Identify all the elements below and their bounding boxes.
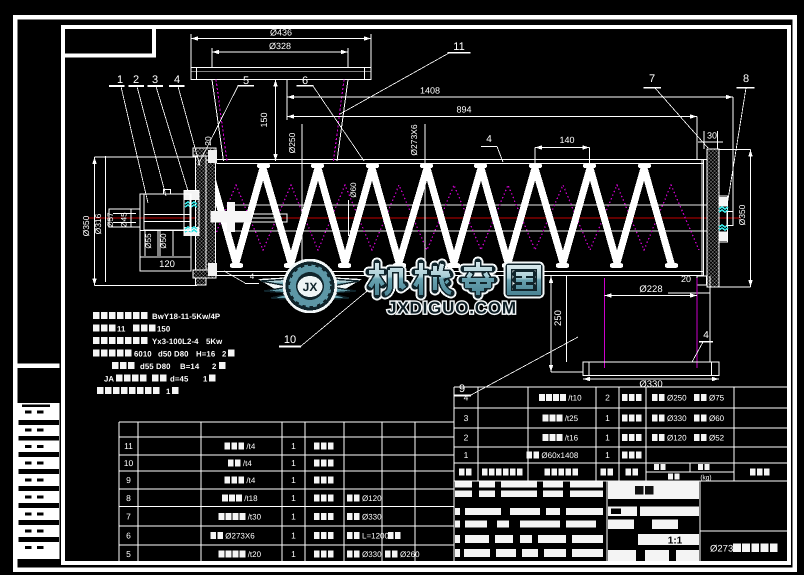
svg-text:4: 4 bbox=[486, 134, 492, 145]
svg-text:1:1: 1:1 bbox=[668, 536, 683, 547]
svg-text:2: 2 bbox=[464, 433, 469, 443]
svg-text:/t25: /t25 bbox=[565, 414, 579, 423]
svg-text:/t10: /t10 bbox=[568, 394, 582, 403]
svg-text:1: 1 bbox=[203, 375, 208, 384]
svg-text:1: 1 bbox=[605, 433, 610, 443]
svg-text:1: 1 bbox=[464, 450, 469, 460]
svg-text:1: 1 bbox=[605, 450, 610, 460]
svg-text:4: 4 bbox=[250, 272, 255, 281]
svg-text:Ø57: Ø57 bbox=[106, 212, 115, 228]
svg-text:BwY18-11-5Kw/4P: BwY18-11-5Kw/4P bbox=[152, 312, 220, 321]
svg-text:JX: JX bbox=[303, 280, 318, 294]
svg-text:Ø316: Ø316 bbox=[93, 213, 103, 234]
svg-text:Ø120: Ø120 bbox=[362, 494, 382, 503]
svg-text:8: 8 bbox=[743, 73, 749, 85]
svg-text:Ø330: Ø330 bbox=[639, 379, 662, 390]
svg-text:Yx3-100L2-4: Yx3-100L2-4 bbox=[152, 337, 199, 346]
svg-text:10: 10 bbox=[284, 334, 296, 346]
svg-text:B=14: B=14 bbox=[180, 362, 200, 371]
svg-text:/t16: /t16 bbox=[565, 434, 579, 443]
svg-text:d55 D80: d55 D80 bbox=[140, 362, 171, 371]
svg-text:140: 140 bbox=[559, 135, 574, 145]
svg-text:/t4: /t4 bbox=[243, 459, 252, 468]
svg-text:3: 3 bbox=[152, 74, 158, 86]
svg-text:Ø330: Ø330 bbox=[362, 550, 382, 559]
svg-text:/t18: /t18 bbox=[244, 494, 258, 503]
svg-text:11: 11 bbox=[117, 325, 126, 334]
svg-text:JA: JA bbox=[104, 375, 114, 384]
svg-text:Ø60: Ø60 bbox=[709, 414, 725, 423]
svg-text:5: 5 bbox=[126, 549, 131, 559]
svg-text:Ø75: Ø75 bbox=[709, 394, 725, 403]
svg-text:120: 120 bbox=[159, 259, 175, 270]
svg-text:4: 4 bbox=[174, 74, 180, 86]
svg-text:1: 1 bbox=[291, 549, 296, 559]
svg-text:Ø350: Ø350 bbox=[737, 204, 747, 225]
svg-text:Ø273: Ø273 bbox=[710, 544, 733, 555]
svg-text:1: 1 bbox=[291, 531, 296, 541]
svg-text:/t30: /t30 bbox=[248, 512, 262, 521]
svg-text:Ø330: Ø330 bbox=[667, 414, 687, 423]
svg-text:Ø350: Ø350 bbox=[81, 215, 91, 236]
svg-text:30: 30 bbox=[707, 131, 717, 141]
svg-text:20: 20 bbox=[681, 274, 691, 284]
svg-text:6010: 6010 bbox=[134, 350, 152, 359]
svg-text:9: 9 bbox=[126, 475, 131, 485]
svg-text:1: 1 bbox=[291, 493, 296, 503]
svg-text:Ø436: Ø436 bbox=[270, 28, 292, 38]
svg-text:11: 11 bbox=[453, 41, 464, 53]
svg-text:JXDIGUO.COM: JXDIGUO.COM bbox=[387, 299, 517, 318]
svg-text:150: 150 bbox=[157, 325, 171, 334]
svg-text:8: 8 bbox=[126, 493, 131, 503]
svg-text:Ø60: Ø60 bbox=[349, 182, 358, 198]
svg-text:1: 1 bbox=[291, 458, 296, 468]
svg-text:L=1200: L=1200 bbox=[362, 532, 389, 541]
svg-text:Ø330: Ø330 bbox=[362, 512, 382, 521]
svg-text:2: 2 bbox=[605, 393, 610, 403]
svg-text:Ø273X6: Ø273X6 bbox=[409, 124, 419, 155]
svg-text:Ø273X6: Ø273X6 bbox=[225, 532, 255, 541]
svg-text:5Kw: 5Kw bbox=[206, 337, 223, 346]
svg-text:1: 1 bbox=[291, 511, 296, 521]
svg-text:Ø120: Ø120 bbox=[667, 434, 687, 443]
svg-text:250: 250 bbox=[553, 310, 564, 326]
svg-text:1408: 1408 bbox=[420, 86, 440, 96]
svg-text:7: 7 bbox=[126, 511, 131, 521]
svg-text:1: 1 bbox=[291, 441, 296, 451]
svg-text:4: 4 bbox=[703, 330, 709, 341]
svg-text:1: 1 bbox=[291, 475, 296, 485]
svg-text:Ø60x1408: Ø60x1408 bbox=[541, 451, 578, 460]
svg-text:4: 4 bbox=[464, 393, 469, 403]
svg-text:894: 894 bbox=[456, 105, 471, 115]
svg-text:Ø250: Ø250 bbox=[287, 132, 297, 153]
svg-text:d50 D80: d50 D80 bbox=[158, 350, 189, 359]
svg-text:1: 1 bbox=[117, 74, 123, 86]
svg-text:2: 2 bbox=[133, 74, 139, 86]
svg-text:3: 3 bbox=[464, 413, 469, 423]
svg-text:2: 2 bbox=[212, 362, 217, 371]
svg-text:H=16: H=16 bbox=[196, 350, 216, 359]
svg-text:10: 10 bbox=[124, 458, 134, 468]
svg-text:Ø328: Ø328 bbox=[269, 41, 291, 51]
svg-text:Ø250: Ø250 bbox=[667, 394, 687, 403]
svg-text:Ø228: Ø228 bbox=[639, 284, 662, 295]
svg-text:/t4: /t4 bbox=[246, 442, 255, 451]
svg-text:/t4: /t4 bbox=[246, 476, 255, 485]
svg-text:Ø45: Ø45 bbox=[120, 212, 129, 228]
svg-text:11: 11 bbox=[124, 441, 133, 451]
svg-text:2: 2 bbox=[222, 350, 227, 359]
svg-text:6: 6 bbox=[126, 531, 131, 541]
svg-text:1: 1 bbox=[605, 413, 610, 423]
svg-text:/t20: /t20 bbox=[248, 550, 262, 559]
svg-text:Ø52: Ø52 bbox=[709, 434, 725, 443]
svg-text:1: 1 bbox=[166, 387, 171, 396]
svg-text:150: 150 bbox=[259, 112, 269, 127]
svg-text:d=45: d=45 bbox=[170, 375, 189, 384]
svg-text:7: 7 bbox=[649, 73, 655, 85]
svg-text:Ø260: Ø260 bbox=[400, 550, 420, 559]
